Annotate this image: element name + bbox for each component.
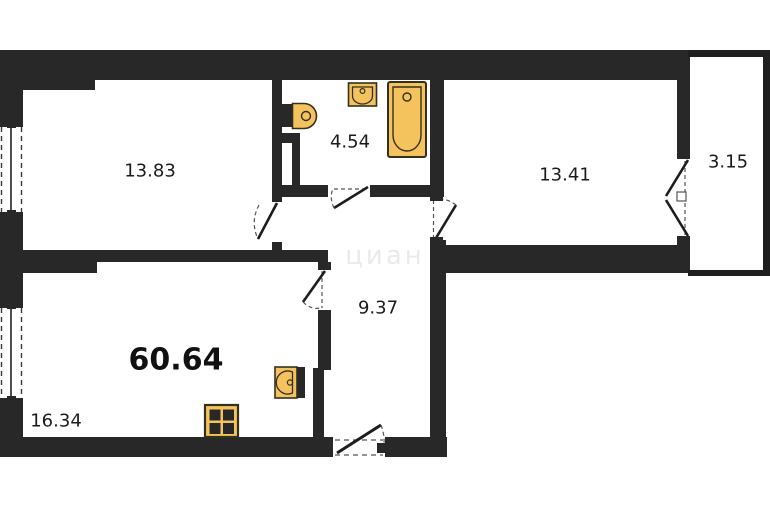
window <box>2 303 22 402</box>
room-area-kitchen: 16.34 <box>30 411 82 432</box>
room-area-hallway: 9.37 <box>358 298 398 319</box>
living-room-door <box>254 203 277 239</box>
kitchen-sink-icon <box>275 367 297 398</box>
room-area-balcony: 3.15 <box>708 152 748 173</box>
stove-icon <box>205 405 238 437</box>
floor-plan: циан 13.83 4.54 13.41 3.15 9.37 16.34 60… <box>0 0 770 510</box>
room-area-bedroom: 13.41 <box>539 165 591 186</box>
bedroom-door <box>430 195 456 243</box>
toilet-icon <box>281 104 317 129</box>
bathtub-icon <box>388 82 426 157</box>
kitchen-door <box>303 271 325 308</box>
washbasin-icon <box>349 83 377 106</box>
balcony-door <box>666 152 690 243</box>
room-area-living-room: 13.83 <box>124 161 176 182</box>
bathroom-door <box>331 187 368 208</box>
total-area-label: 60.64 <box>129 343 224 378</box>
window <box>2 122 22 216</box>
entrance-door <box>335 425 386 455</box>
room-area-bathroom: 4.54 <box>330 132 370 153</box>
watermark: циан <box>345 241 425 271</box>
